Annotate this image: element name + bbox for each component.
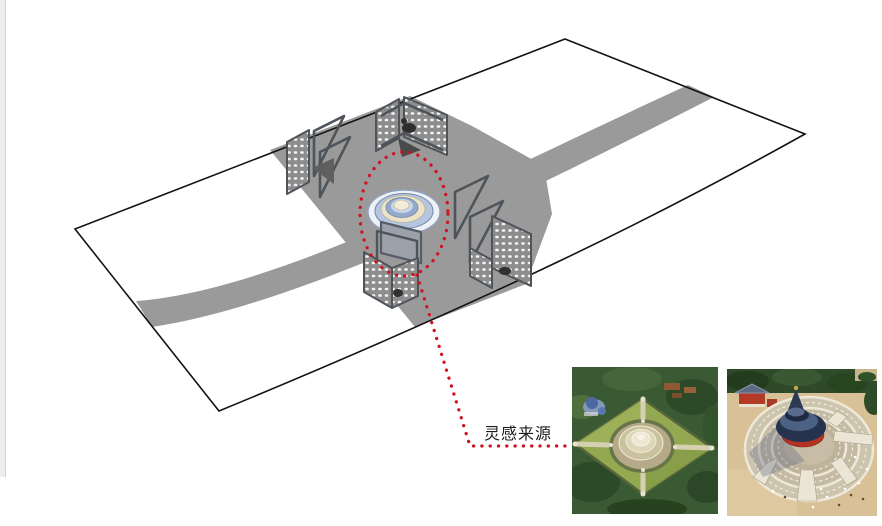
aerial-photo-temple-of-heaven [727, 369, 877, 516]
aerial-photo-circular-mound-altar [572, 367, 718, 514]
sculpture-icon [402, 123, 416, 133]
sculpture-icon [393, 289, 403, 297]
sculpture-icon [499, 267, 511, 275]
slide-canvas: 灵感来源 [0, 0, 882, 526]
inspiration-label: 灵感来源 [484, 420, 554, 444]
